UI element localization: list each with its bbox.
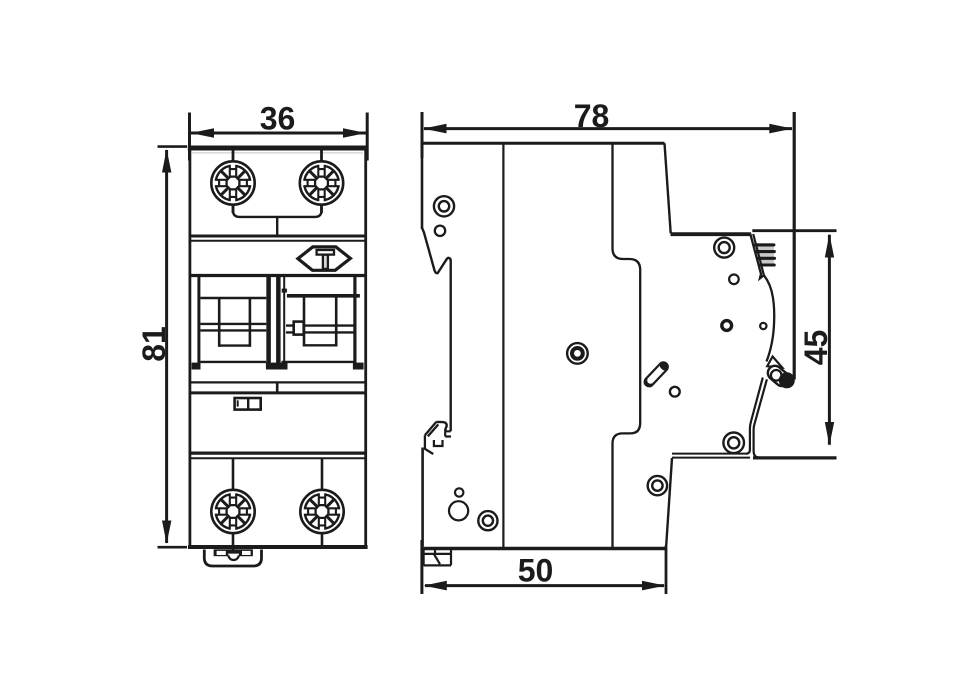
svg-text:45: 45: [798, 330, 834, 366]
svg-text:50: 50: [518, 553, 554, 589]
svg-text:36: 36: [260, 101, 296, 137]
svg-text:78: 78: [574, 98, 610, 134]
svg-text:81: 81: [136, 326, 172, 362]
